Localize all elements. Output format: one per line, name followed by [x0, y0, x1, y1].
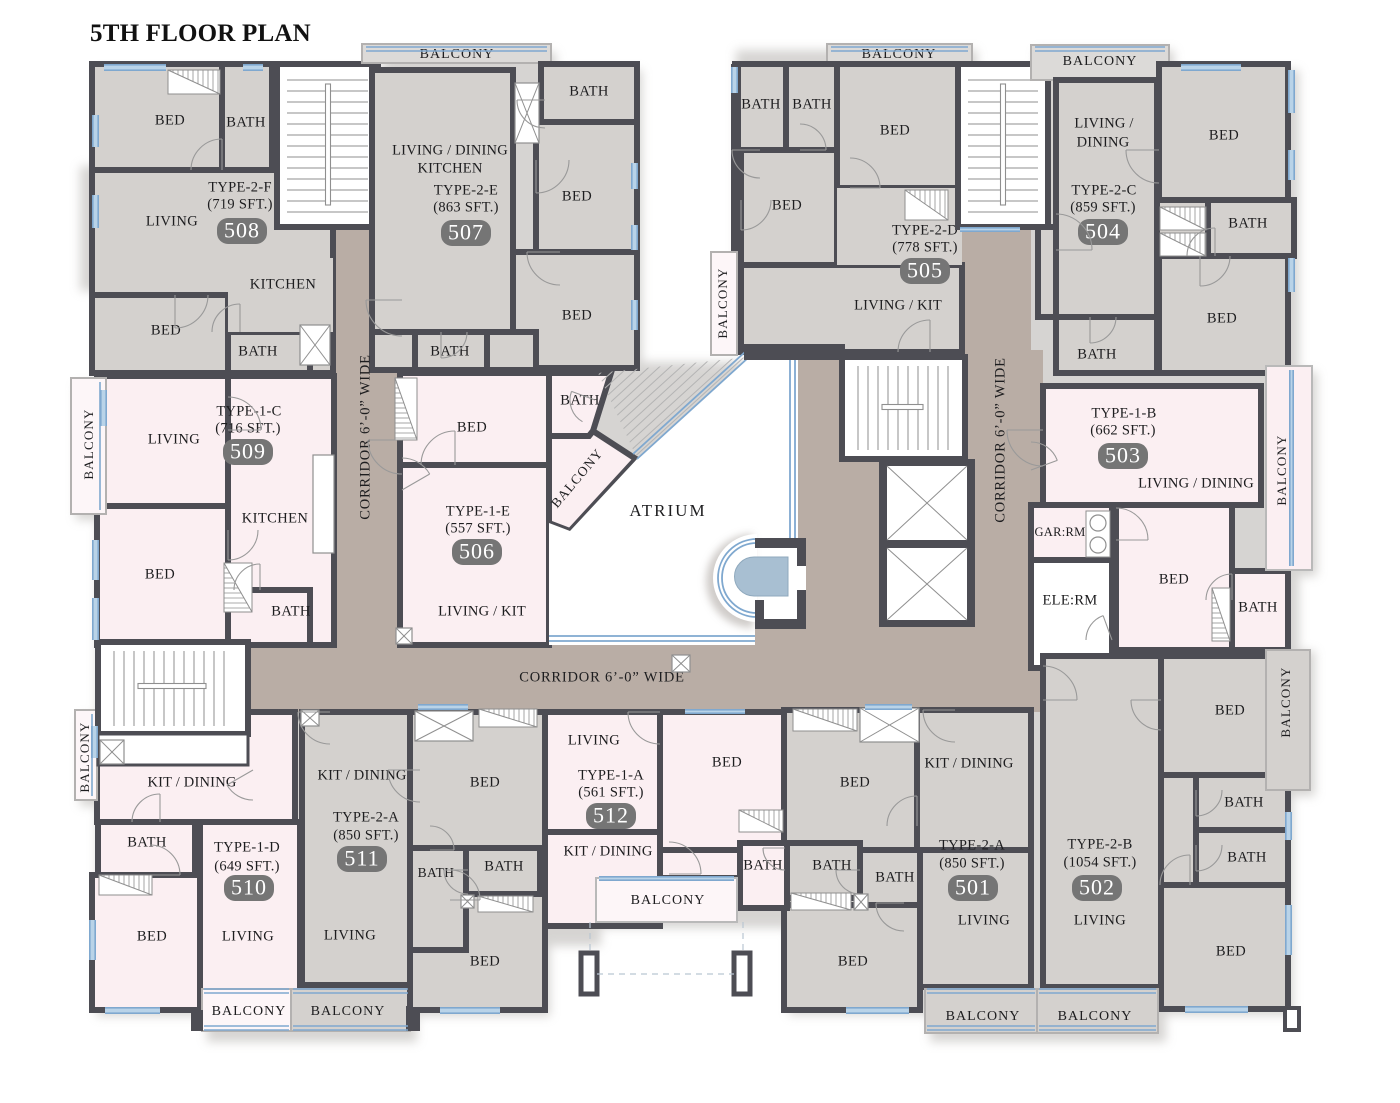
svg-text:BATH: BATH	[569, 83, 609, 99]
svg-text:LIVING / DINING: LIVING / DINING	[392, 142, 508, 158]
svg-text:BED: BED	[840, 774, 870, 790]
svg-text:TYPE-1-B: TYPE-1-B	[1091, 405, 1156, 421]
svg-text:BALCONY: BALCONY	[715, 267, 730, 338]
svg-text:(850 SFT.): (850 SFT.)	[939, 855, 1005, 871]
svg-text:(863 SFT.): (863 SFT.)	[433, 199, 499, 215]
svg-text:GAR:RM: GAR:RM	[1034, 525, 1085, 539]
svg-text:LIVING /: LIVING /	[1074, 115, 1134, 131]
svg-text:BALCONY: BALCONY	[212, 1004, 287, 1019]
svg-text:5TH FLOOR PLAN: 5TH FLOOR PLAN	[90, 20, 311, 47]
svg-text:CORRIDOR 6’-0” WIDE: CORRIDOR 6’-0” WIDE	[519, 669, 685, 685]
svg-text:BALCONY: BALCONY	[631, 893, 706, 908]
svg-text:KITCHEN: KITCHEN	[417, 160, 482, 176]
svg-text:BALCONY: BALCONY	[946, 1009, 1021, 1024]
svg-text:BATH: BATH	[226, 114, 266, 130]
svg-text:BALCONY: BALCONY	[1278, 666, 1293, 737]
svg-text:ELE:RM: ELE:RM	[1043, 592, 1098, 608]
svg-text:CORRIDOR 6’-0” WIDE: CORRIDOR 6’-0” WIDE	[992, 357, 1008, 523]
svg-text:BALCONY: BALCONY	[1063, 54, 1138, 69]
svg-text:512: 512	[593, 803, 629, 828]
svg-text:LIVING: LIVING	[222, 928, 274, 944]
svg-text:BATH: BATH	[875, 869, 915, 885]
svg-text:BALCONY: BALCONY	[1058, 1009, 1133, 1024]
svg-text:BALCONY: BALCONY	[1274, 434, 1289, 505]
svg-text:BATH: BATH	[271, 603, 311, 619]
svg-text:510: 510	[231, 875, 267, 900]
svg-text:BATH: BATH	[743, 857, 783, 873]
svg-text:BALCONY: BALCONY	[77, 721, 92, 792]
svg-text:TYPE-1-E: TYPE-1-E	[446, 503, 510, 519]
svg-text:BALCONY: BALCONY	[862, 47, 937, 62]
svg-text:LIVING: LIVING	[146, 213, 198, 229]
svg-text:KITCHEN: KITCHEN	[242, 510, 309, 526]
svg-text:LIVING / KIT: LIVING / KIT	[438, 603, 526, 619]
svg-text:TYPE-1-D: TYPE-1-D	[214, 839, 280, 855]
svg-text:KIT / DINING: KIT / DINING	[563, 843, 652, 859]
svg-text:LIVING: LIVING	[324, 927, 376, 943]
svg-text:(557 SFT.): (557 SFT.)	[445, 520, 511, 536]
svg-text:(850 SFT.): (850 SFT.)	[333, 827, 399, 843]
svg-text:BATH: BATH	[1228, 215, 1268, 231]
svg-text:BATH: BATH	[484, 858, 524, 874]
svg-text:TYPE-1-A: TYPE-1-A	[578, 767, 644, 783]
svg-text:BED: BED	[772, 197, 802, 213]
svg-text:(859 SFT.): (859 SFT.)	[1070, 199, 1136, 215]
svg-text:(778 SFT.): (778 SFT.)	[892, 239, 958, 255]
svg-text:BATH: BATH	[1238, 599, 1278, 615]
svg-text:BATH: BATH	[1227, 849, 1267, 865]
svg-text:BED: BED	[562, 188, 592, 204]
svg-text:503: 503	[1105, 443, 1141, 468]
svg-text:TYPE-2-F: TYPE-2-F	[208, 179, 272, 195]
svg-text:BED: BED	[1216, 943, 1246, 959]
svg-text:511: 511	[344, 846, 379, 871]
svg-text:LIVING / DINING: LIVING / DINING	[1138, 475, 1254, 491]
svg-text:ATRIUM: ATRIUM	[629, 501, 706, 520]
svg-text:TYPE-1-C: TYPE-1-C	[216, 403, 281, 419]
svg-text:TYPE-2-A: TYPE-2-A	[939, 837, 1005, 853]
svg-text:BED: BED	[1159, 571, 1189, 587]
svg-text:BALCONY: BALCONY	[81, 408, 96, 479]
svg-text:TYPE-2-C: TYPE-2-C	[1071, 182, 1136, 198]
svg-text:BATH: BATH	[418, 865, 455, 880]
svg-text:BATH: BATH	[1224, 794, 1264, 810]
svg-text:508: 508	[224, 218, 260, 243]
svg-text:505: 505	[907, 258, 943, 283]
svg-text:BATH: BATH	[812, 857, 852, 873]
svg-text:LIVING / KIT: LIVING / KIT	[854, 297, 942, 313]
svg-text:BED: BED	[1209, 127, 1239, 143]
svg-text:BALCONY: BALCONY	[420, 47, 495, 62]
svg-text:506: 506	[459, 539, 495, 564]
svg-text:(1054 SFT.): (1054 SFT.)	[1063, 854, 1136, 870]
svg-text:LIVING: LIVING	[148, 431, 200, 447]
svg-text:TYPE-2-E: TYPE-2-E	[434, 182, 498, 198]
svg-text:BED: BED	[1207, 310, 1237, 326]
svg-text:TYPE-2-A: TYPE-2-A	[333, 809, 399, 825]
svg-text:BATH: BATH	[1077, 346, 1117, 362]
svg-text:(662 SFT.): (662 SFT.)	[1090, 422, 1156, 438]
svg-text:BATH: BATH	[792, 96, 832, 112]
svg-text:LIVING: LIVING	[568, 732, 620, 748]
svg-text:BED: BED	[155, 112, 185, 128]
svg-text:(649 SFT.): (649 SFT.)	[214, 858, 280, 874]
svg-text:(716 SFT.): (716 SFT.)	[215, 420, 281, 436]
svg-text:BED: BED	[457, 419, 487, 435]
svg-text:BALCONY: BALCONY	[311, 1004, 386, 1019]
svg-text:BED: BED	[137, 928, 167, 944]
svg-text:BED: BED	[562, 307, 592, 323]
svg-text:BED: BED	[1215, 702, 1245, 718]
svg-text:BATH: BATH	[741, 96, 781, 112]
svg-text:TYPE-2-D: TYPE-2-D	[892, 222, 958, 238]
svg-text:BED: BED	[838, 953, 868, 969]
svg-text:502: 502	[1079, 875, 1115, 900]
svg-text:KIT / DINING: KIT / DINING	[147, 774, 236, 790]
svg-text:BED: BED	[151, 322, 181, 338]
svg-text:TYPE-2-B: TYPE-2-B	[1067, 836, 1132, 852]
svg-text:(719 SFT.): (719 SFT.)	[207, 196, 273, 212]
svg-text:KITCHEN: KITCHEN	[250, 276, 317, 292]
svg-text:LIVING: LIVING	[1074, 912, 1126, 928]
svg-text:BED: BED	[880, 122, 910, 138]
svg-text:507: 507	[448, 220, 484, 245]
svg-text:501: 501	[955, 875, 991, 900]
svg-text:(561 SFT.): (561 SFT.)	[578, 784, 644, 800]
svg-text:BED: BED	[145, 566, 175, 582]
svg-text:BED: BED	[712, 754, 742, 770]
svg-text:BATH: BATH	[238, 343, 278, 359]
svg-text:KIT / DINING: KIT / DINING	[924, 755, 1013, 771]
svg-text:LIVING: LIVING	[958, 912, 1010, 928]
svg-text:DINING: DINING	[1077, 134, 1130, 150]
svg-text:509: 509	[230, 439, 266, 464]
svg-text:BED: BED	[470, 774, 500, 790]
svg-text:BATH: BATH	[127, 834, 167, 850]
svg-text:BED: BED	[470, 953, 500, 969]
svg-text:CORRIDOR 6’-0” WIDE: CORRIDOR 6’-0” WIDE	[357, 354, 373, 520]
